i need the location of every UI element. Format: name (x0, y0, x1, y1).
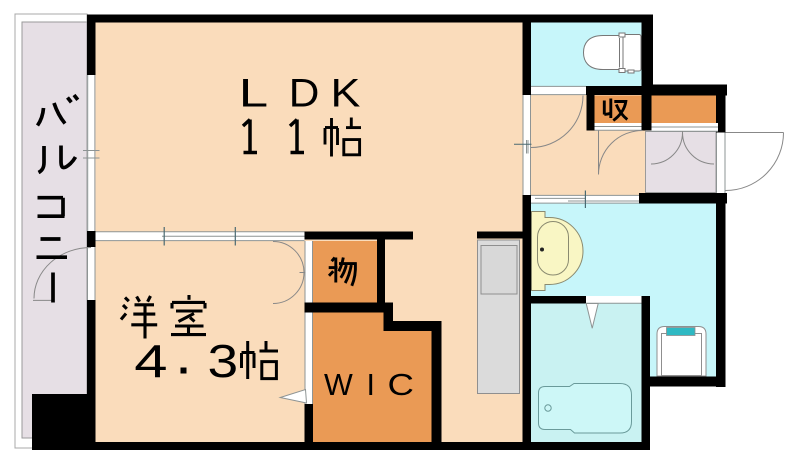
svg-text:3: 3 (208, 335, 239, 387)
svg-text:D: D (289, 71, 320, 116)
svg-text:W: W (324, 368, 353, 402)
svg-text:K: K (331, 71, 361, 115)
svg-text:I: I (367, 368, 375, 402)
svg-text:4: 4 (134, 336, 167, 387)
svg-text:C: C (388, 369, 414, 402)
svg-text:L: L (239, 71, 268, 115)
